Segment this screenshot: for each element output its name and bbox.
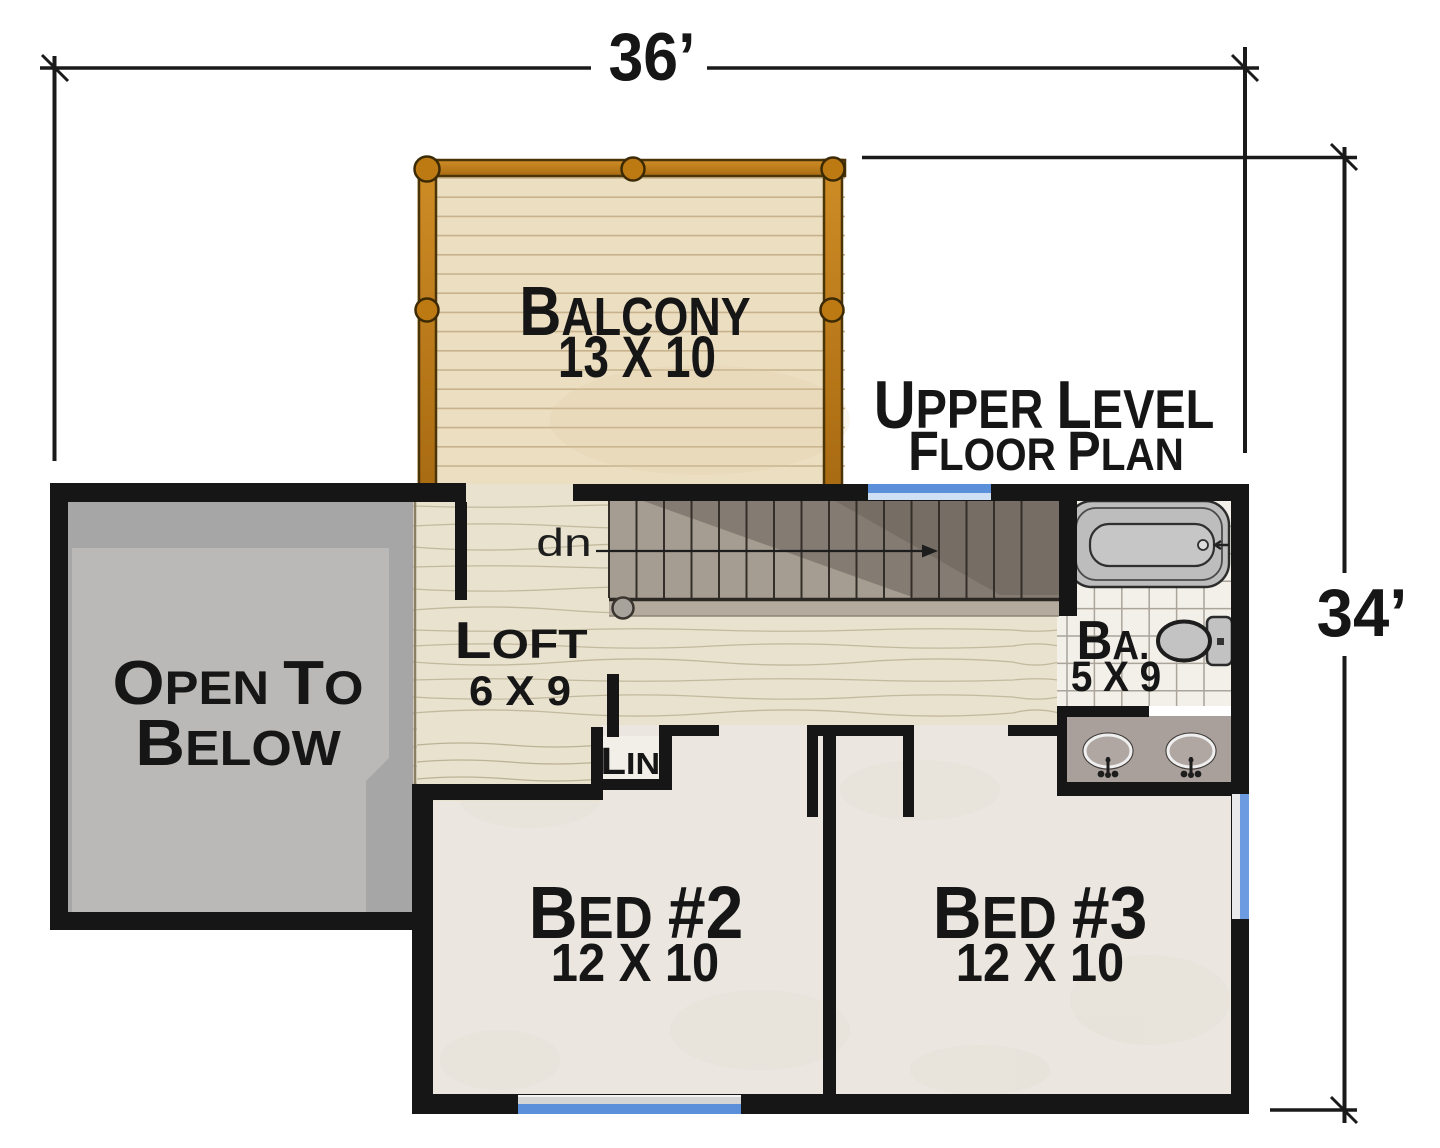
- svg-text:12 X 10: 12 X 10: [551, 932, 719, 993]
- svg-text:36’: 36’: [609, 19, 696, 95]
- svg-text:34’: 34’: [1317, 576, 1408, 651]
- svg-text:13 X 10: 13 X 10: [558, 326, 716, 390]
- svg-text:dn: dn: [536, 521, 592, 565]
- svg-text:5 X 9: 5 X 9: [1071, 652, 1161, 700]
- svg-text:12 X 10: 12 X 10: [956, 932, 1124, 993]
- svg-text:LIN.: LIN.: [600, 741, 669, 783]
- svg-text:6 X 9: 6 X 9: [469, 668, 571, 715]
- svg-text:FLOOR PLAN: FLOOR PLAN: [908, 421, 1184, 483]
